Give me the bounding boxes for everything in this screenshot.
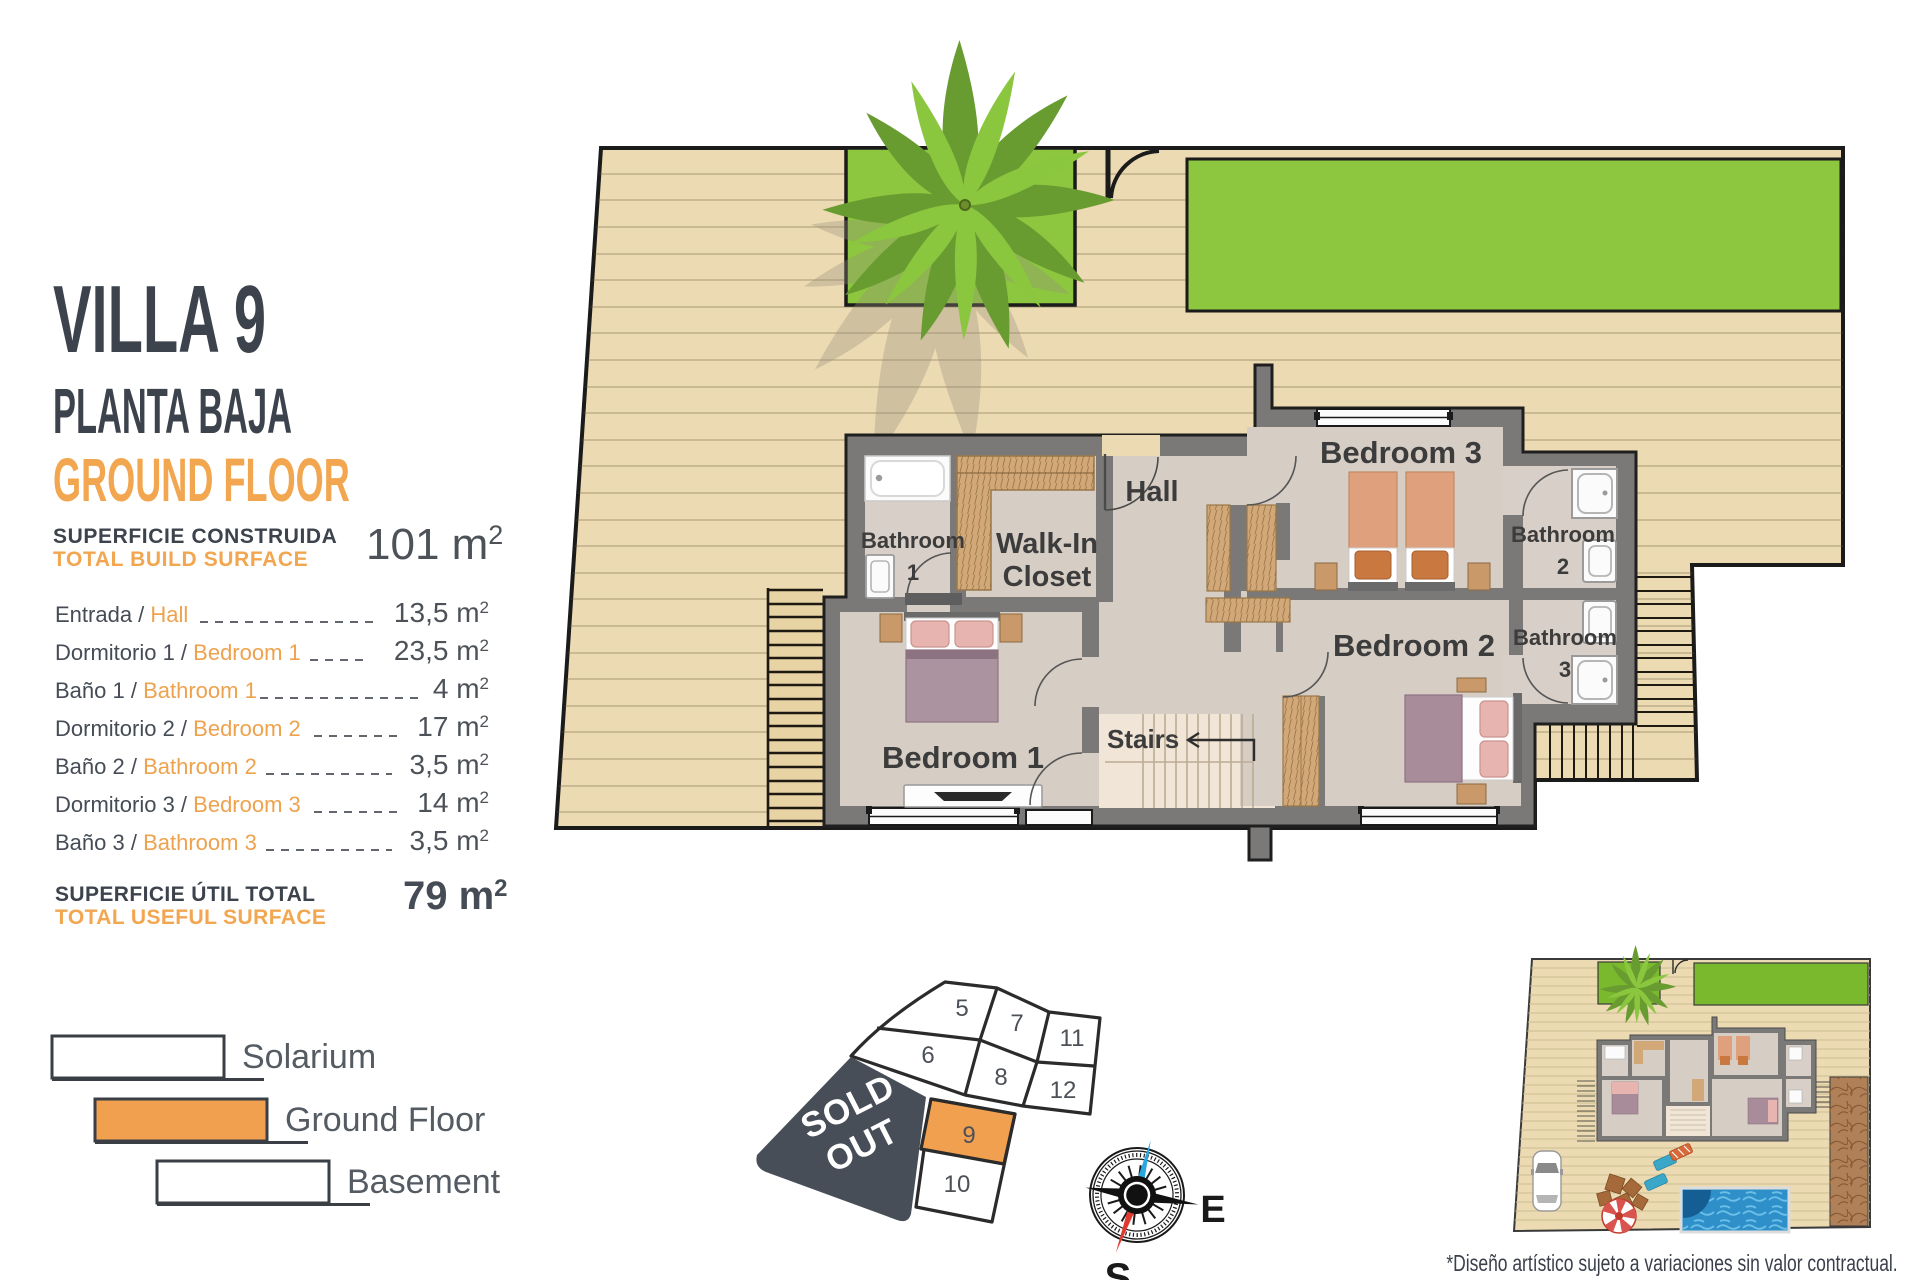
svg-text:*Diseño artístico sujeto a var: *Diseño artístico sujeto a variaciones s… <box>1446 1252 1897 1277</box>
svg-text:Bathroom: Bathroom <box>1513 625 1617 650</box>
svg-text:3: 3 <box>1559 657 1571 682</box>
svg-text:7: 7 <box>1010 1010 1023 1037</box>
svg-text:Dormitorio 1 / Bedroom 1: Dormitorio 1 / Bedroom 1 <box>55 640 301 665</box>
svg-text:79 m2: 79 m2 <box>403 874 508 918</box>
svg-text:101 m2: 101 m2 <box>366 520 503 569</box>
svg-text:Closet: Closet <box>1003 561 1092 593</box>
svg-text:Hall: Hall <box>1125 476 1178 508</box>
svg-text:3,5 m2: 3,5 m2 <box>410 749 490 780</box>
svg-text:Ground Floor: Ground Floor <box>285 1101 485 1139</box>
svg-text:4 m2: 4 m2 <box>433 673 489 704</box>
svg-text:9: 9 <box>962 1122 975 1149</box>
svg-text:Bathroom: Bathroom <box>861 528 965 553</box>
svg-text:Baño 2 / Bathroom 2: Baño 2 / Bathroom 2 <box>55 754 257 779</box>
svg-text:17 m2: 17 m2 <box>417 711 489 742</box>
svg-text:GROUND FLOOR: GROUND FLOOR <box>53 446 350 514</box>
svg-text:Bedroom 2: Bedroom 2 <box>1333 628 1495 663</box>
svg-text:Baño 3 / Bathroom 3: Baño 3 / Bathroom 3 <box>55 830 257 855</box>
svg-text:10: 10 <box>944 1171 971 1198</box>
svg-text:3,5 m2: 3,5 m2 <box>410 825 490 856</box>
svg-text:11: 11 <box>1060 1025 1085 1052</box>
svg-text:SUPERFICIE CONSTRUIDA: SUPERFICIE CONSTRUIDA <box>53 525 337 548</box>
svg-text:Bedroom 3: Bedroom 3 <box>1320 435 1482 470</box>
svg-text:SUPERFICIE ÚTIL TOTAL: SUPERFICIE ÚTIL TOTAL <box>55 882 315 906</box>
svg-text:Stairs: Stairs <box>1107 724 1179 754</box>
svg-text:12: 12 <box>1050 1077 1077 1104</box>
svg-text:Entrada / Hall: Entrada / Hall <box>55 602 188 627</box>
svg-text:6: 6 <box>921 1042 934 1069</box>
svg-text:2: 2 <box>1557 554 1569 579</box>
svg-text:S: S <box>1105 1256 1132 1280</box>
svg-text:VILLA 9: VILLA 9 <box>53 265 266 373</box>
svg-text:13,5 m2: 13,5 m2 <box>394 597 489 628</box>
svg-text:8: 8 <box>994 1064 1007 1091</box>
svg-text:14 m2: 14 m2 <box>417 787 489 818</box>
svg-text:PLANTA BAJA: PLANTA BAJA <box>53 374 292 446</box>
svg-text:Basement: Basement <box>347 1163 501 1201</box>
svg-text:Walk-In: Walk-In <box>996 528 1098 560</box>
svg-text:Baño 1 / Bathroom 1: Baño 1 / Bathroom 1 <box>55 678 257 703</box>
svg-text:Bedroom 1: Bedroom 1 <box>882 740 1044 775</box>
svg-text:5: 5 <box>955 995 968 1022</box>
svg-text:TOTAL BUILD SURFACE: TOTAL BUILD SURFACE <box>53 548 308 571</box>
svg-text:Bathroom: Bathroom <box>1511 522 1615 547</box>
svg-text:TOTAL USEFUL SURFACE: TOTAL USEFUL SURFACE <box>55 906 326 929</box>
svg-text:Dormitorio 3 / Bedroom 3: Dormitorio 3 / Bedroom 3 <box>55 792 301 817</box>
svg-text:1: 1 <box>907 560 919 585</box>
svg-text:Solarium: Solarium <box>242 1038 376 1076</box>
svg-text:E: E <box>1200 1189 1225 1231</box>
svg-text:23,5 m2: 23,5 m2 <box>394 635 489 666</box>
svg-text:Dormitorio 2 / Bedroom 2: Dormitorio 2 / Bedroom 2 <box>55 716 301 741</box>
